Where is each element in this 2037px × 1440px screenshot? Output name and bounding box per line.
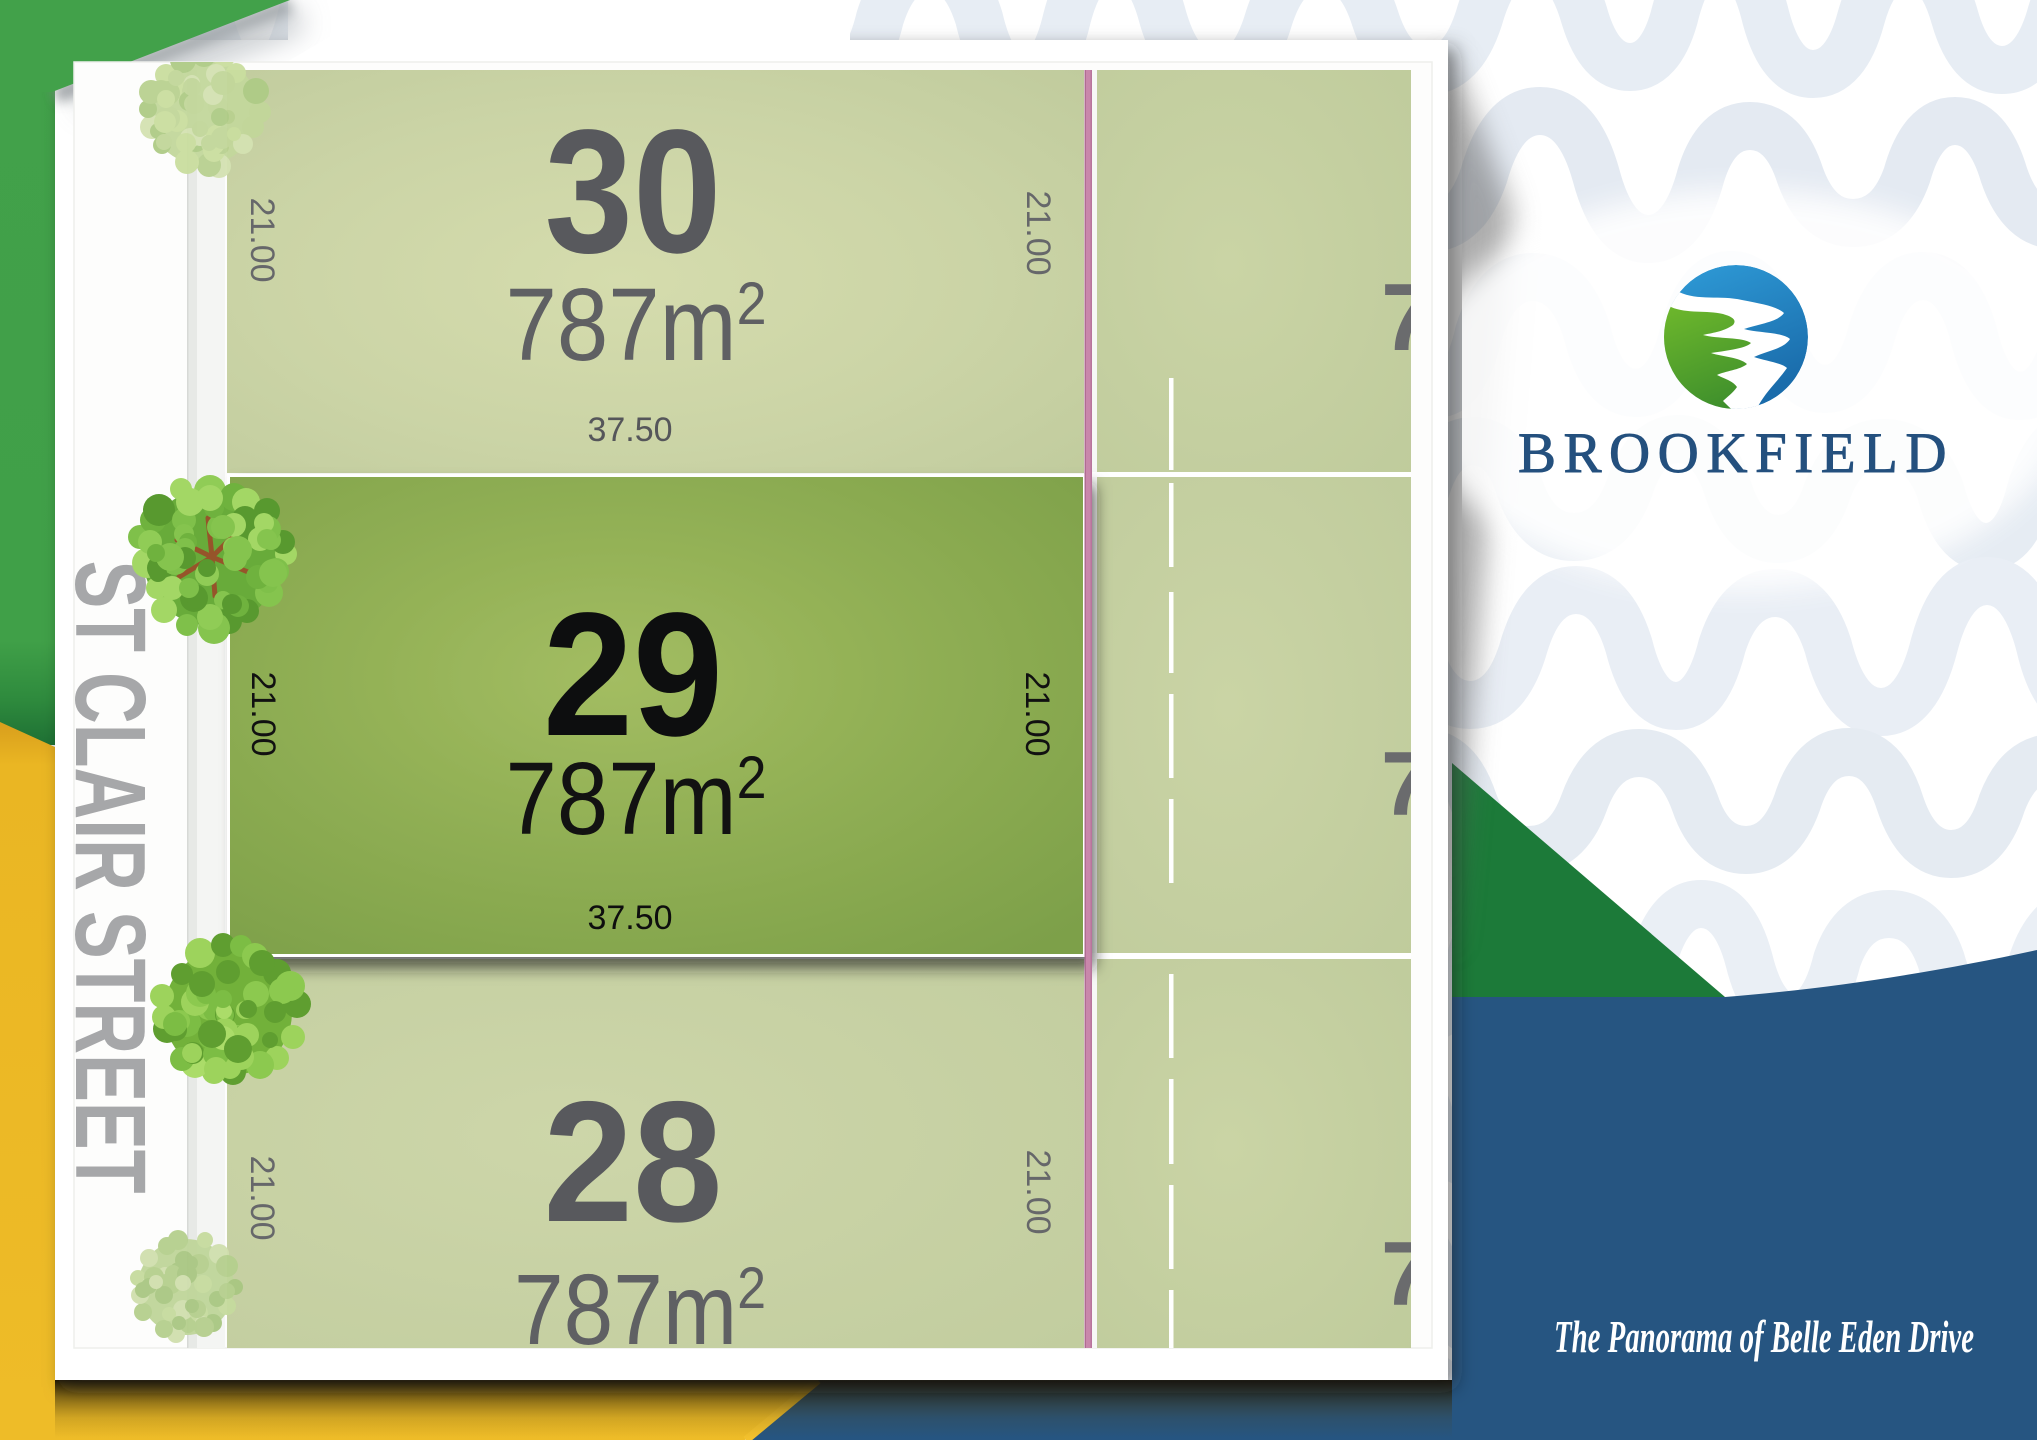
svg-text:21.00: 21.00 — [1019, 190, 1057, 275]
svg-text:28: 28 — [544, 1066, 723, 1258]
svg-text:21.00: 21.00 — [243, 1155, 281, 1240]
svg-text:21.00: 21.00 — [1019, 1149, 1057, 1234]
svg-text:787m2: 787m2 — [506, 267, 767, 382]
svg-text:21.00: 21.00 — [243, 197, 281, 282]
svg-text:ST CLAIR STREET: ST CLAIR STREET — [54, 561, 166, 1194]
svg-text:37.50: 37.50 — [587, 411, 672, 449]
svg-text:787m2: 787m2 — [506, 741, 767, 856]
svg-text:The Panorama of Belle Eden Dri: The Panorama of Belle Eden Drive — [1554, 1312, 1974, 1362]
svg-text:37.50: 37.50 — [587, 899, 672, 937]
svg-text:787m2: 787m2 — [514, 1254, 766, 1366]
svg-text:21.00: 21.00 — [1018, 671, 1056, 756]
svg-text:30: 30 — [545, 94, 722, 290]
svg-text:BROOKFIELD: BROOKFIELD — [1518, 422, 1954, 485]
svg-text:21.00: 21.00 — [244, 671, 282, 756]
